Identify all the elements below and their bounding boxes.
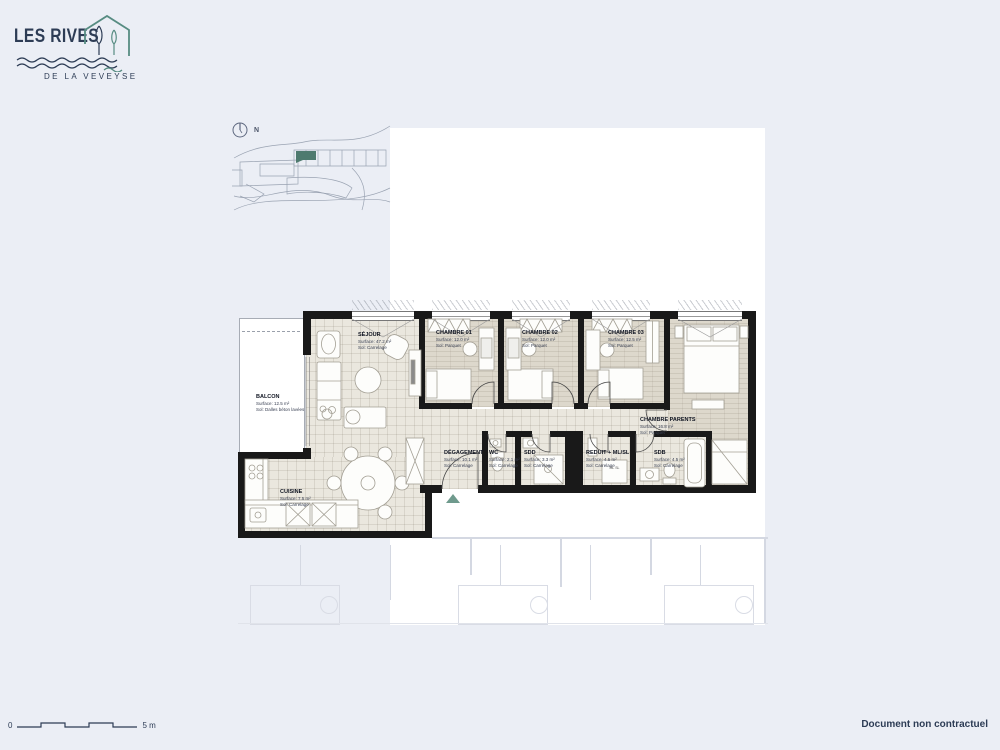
ghost-wall — [238, 623, 768, 624]
room-label-sejour: SÉJOUR Surface: 47.2 m² Sol: Carrelage — [358, 332, 391, 352]
washer-dryer-label: ML SL — [603, 467, 626, 471]
ghost-plant — [530, 596, 548, 614]
ghost-plant — [735, 596, 753, 614]
ghost-wall — [390, 545, 391, 600]
ghost-wall — [764, 537, 766, 623]
ghost-wall — [590, 545, 591, 600]
room-label-cuisine: CUISINE Surface: 7.5 m² Sol: Carrelage — [280, 489, 311, 509]
room-label-balcon: BALCON Surface: 12.5 m² Sol: Dalles béto… — [256, 394, 304, 414]
room-label-sdb: SDB Surface: 4.5 m² Sol: Carrelage — [654, 450, 685, 470]
room-label-degagement: DÉGAGEMENT Surface: 10.1 m² Sol: Carrela… — [444, 450, 483, 470]
room-label-chambre02: CHAMBRE 02 Surface: 12.0 m² Sol: Parquet — [522, 330, 558, 350]
room-label-wc: WC Surface: 2.1 m² Sol: Carrelage — [489, 450, 520, 470]
room-label-sdd: SDD Surface: 3.3 m² Sol: Carrelage — [524, 450, 555, 470]
ghost-wall — [700, 545, 701, 585]
room-label-chambre-parents: CHAMBRE PARENTS Surface: 16.8 m² Sol: Pa… — [640, 417, 696, 437]
floorplan-page: { "brand": { "title": "LES RIVES", "subt… — [0, 0, 1000, 750]
sliding-door — [306, 357, 310, 446]
room-label-chambre01: CHAMBRE 01 Surface: 12.0 m² Sol: Parquet — [436, 330, 472, 350]
ghost-plant — [320, 596, 338, 614]
entrance-arrow-icon — [446, 494, 460, 503]
room-label-chambre03: CHAMBRE 03 Surface: 12.5 m² Sol: Parquet — [608, 330, 644, 350]
ghost-wall — [300, 545, 301, 585]
ghost-wall — [500, 545, 501, 585]
